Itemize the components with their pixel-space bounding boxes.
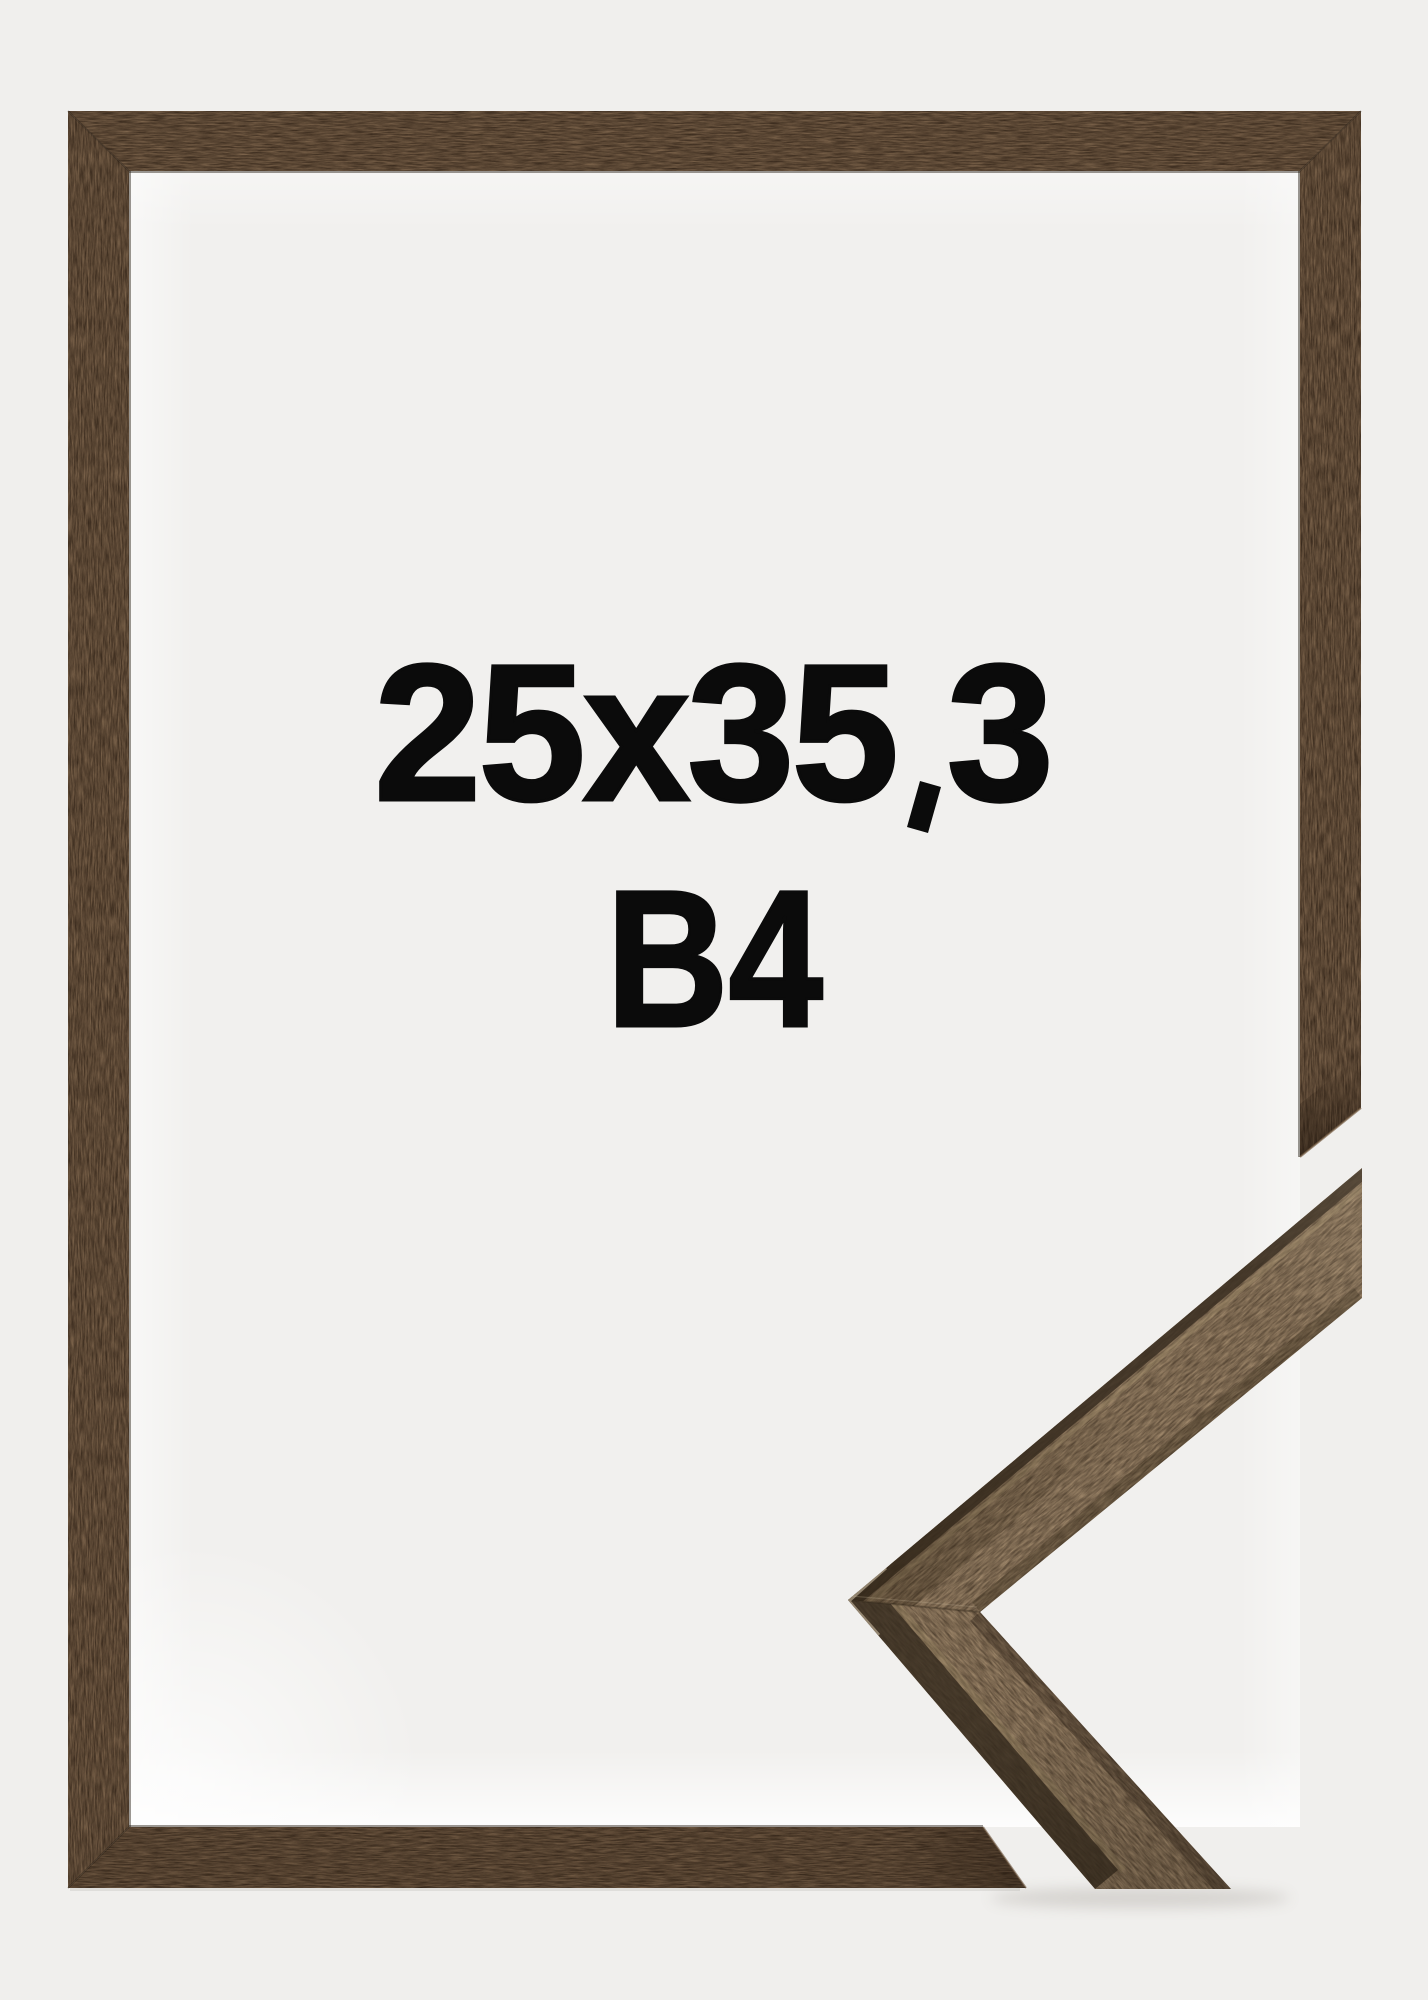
- svg-text:25x35,3: 25x35,3: [374, 624, 1051, 842]
- svg-text:B4: B4: [606, 850, 823, 1068]
